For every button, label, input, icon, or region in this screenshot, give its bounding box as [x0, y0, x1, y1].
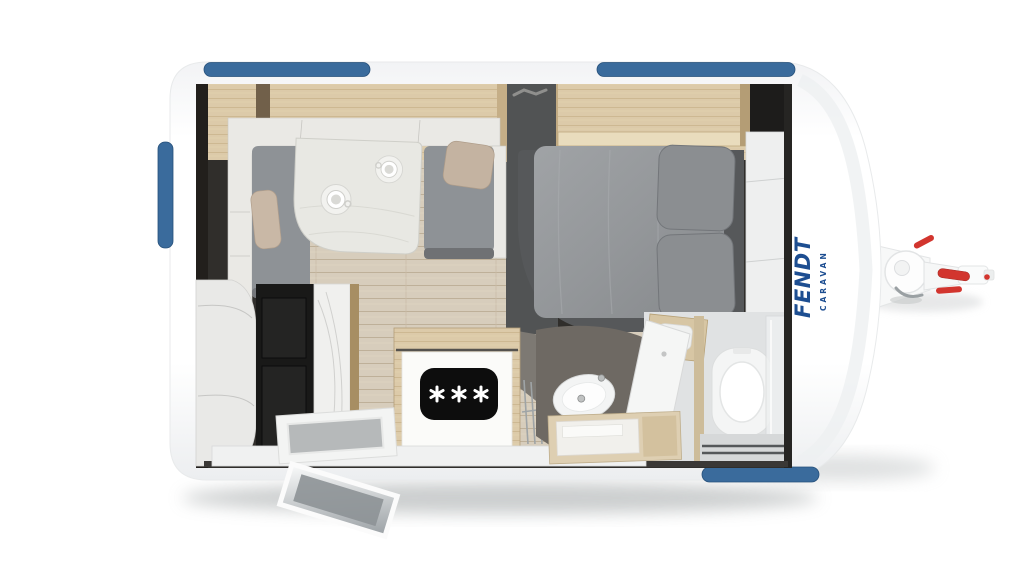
toilet-hinge: [733, 348, 751, 354]
dinette-bench-front: [424, 248, 494, 259]
toilet: [712, 348, 772, 436]
fridge-tower: [196, 280, 256, 466]
tabletop: [292, 138, 422, 254]
awning-rail-front-roof: [597, 63, 795, 77]
dinette-side-shell: [492, 146, 506, 258]
galley-drawer-open: [548, 411, 682, 464]
shelf-front-lip: [558, 132, 748, 146]
shelf-over-bed: [558, 84, 748, 136]
fendt-caravan-topview-svg: FENDT CARAVAN: [0, 0, 1024, 576]
bed-pillow-top: [657, 145, 736, 232]
scatter-pillow-left: [250, 189, 282, 249]
folded-towel: [562, 424, 622, 437]
coffee-cup-2: [375, 155, 403, 183]
coffee-cup-1: [320, 184, 351, 215]
drawer-side-wood: [642, 416, 677, 457]
shower-tray: [700, 434, 786, 462]
scatter-pillow-right: [442, 140, 496, 190]
front-bottom-trim: [702, 467, 819, 482]
logo-fendt: FENDT: [791, 236, 815, 318]
bed-side-cabinet: [746, 132, 788, 332]
door-knob: [661, 351, 666, 356]
rear-wall-trim: [158, 142, 173, 248]
wardrobe-shelf-top: [262, 298, 306, 358]
front-corner-dark: [750, 84, 788, 136]
caravan-floorplan-render: FENDT CARAVAN: [0, 0, 1024, 576]
entrance-door-inner: [276, 408, 397, 464]
tow-hitch: [885, 234, 994, 304]
cabinet-front: [746, 132, 788, 332]
coupling-red-dot: [984, 274, 990, 280]
bed-pillow-bottom: [657, 233, 736, 320]
toilet-seat: [720, 362, 764, 422]
hitch-lever: [913, 234, 935, 250]
french-bed: [518, 145, 744, 332]
awning-rail-rear-roof: [204, 63, 370, 77]
dinette-table: [292, 138, 422, 254]
logo-caravan: CARAVAN: [819, 250, 828, 311]
door-window: [288, 418, 384, 454]
jockey-wheel-hub: [895, 261, 910, 276]
